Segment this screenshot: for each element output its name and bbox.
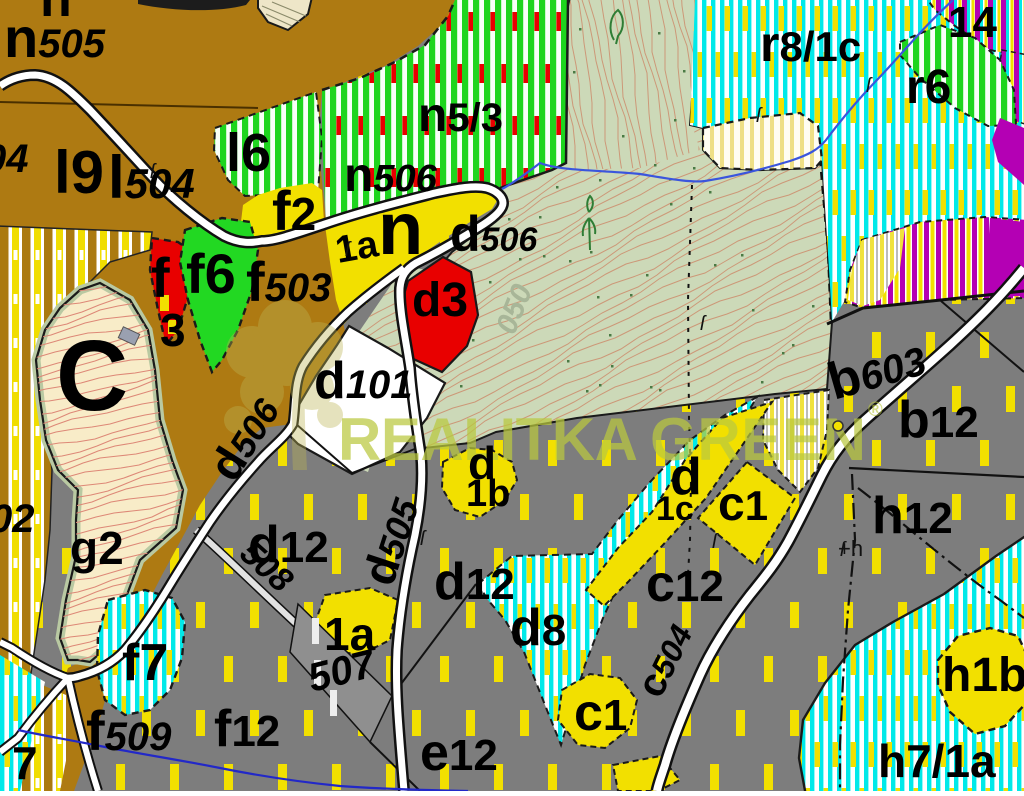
svg-text:f12: f12	[214, 700, 280, 758]
svg-text:d3: d3	[412, 274, 468, 327]
svg-text:d12: d12	[434, 553, 515, 611]
svg-text:e12: e12	[420, 724, 498, 782]
svg-text:h1b: h1b	[942, 649, 1024, 702]
svg-text:f2: f2	[272, 179, 316, 242]
svg-text:b12: b12	[898, 391, 979, 449]
svg-text:1a: 1a	[332, 223, 382, 272]
svg-text:02: 02	[0, 497, 35, 541]
svg-text:h7/1a: h7/1a	[878, 735, 996, 787]
svg-text:®: ®	[868, 399, 883, 421]
svg-text:14: 14	[948, 0, 997, 47]
svg-text:1b: 1b	[466, 473, 510, 515]
svg-text:n5/3: n5/3	[418, 89, 503, 142]
svg-text:c1: c1	[574, 684, 627, 742]
svg-text:f: f	[151, 246, 170, 309]
svg-text:r8/1c: r8/1c	[760, 16, 861, 72]
svg-text:7: 7	[12, 737, 38, 789]
svg-text:l9: l9	[54, 139, 104, 206]
svg-text:+h: +h	[838, 536, 863, 561]
svg-text:c1: c1	[718, 478, 768, 531]
svg-text:g2: g2	[70, 522, 124, 574]
svg-text:n: n	[378, 187, 423, 270]
svg-text:f7: f7	[122, 634, 168, 692]
svg-text:h12: h12	[872, 487, 953, 545]
svg-text:3: 3	[160, 304, 186, 356]
svg-text:l6: l6	[226, 123, 271, 183]
svg-text:1c: 1c	[656, 490, 694, 528]
svg-text:C: C	[56, 320, 128, 432]
svg-text:f6: f6	[186, 242, 236, 305]
svg-text:r6: r6	[906, 61, 951, 114]
svg-text:04: 04	[0, 137, 29, 181]
svg-text:d8: d8	[510, 599, 566, 657]
svg-text:c12: c12	[646, 555, 724, 613]
svg-text:n: n	[40, 0, 72, 28]
